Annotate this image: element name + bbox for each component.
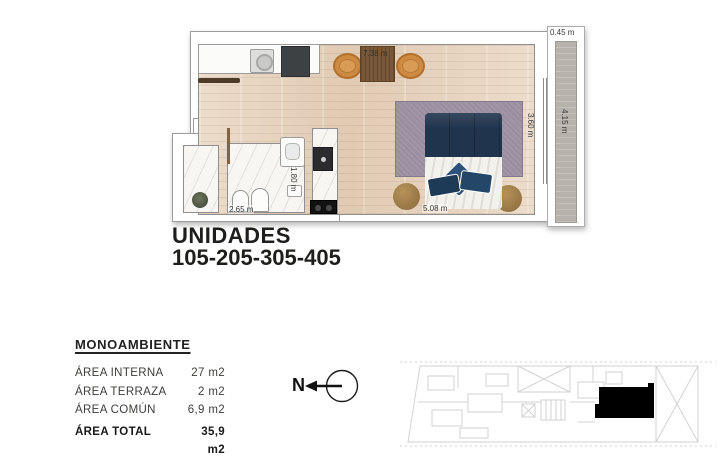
area-row-terraza: ÁREA TERRAZA 2 m2 [75, 383, 225, 402]
brochure-page: 7.38 m 0.45 m 3.60 m 4.15 m 5.08 m 2.65 … [0, 0, 720, 474]
stove [281, 46, 310, 77]
areas-heading: MONOAMBIENTE [75, 337, 225, 352]
oven [313, 147, 333, 171]
cooktop [310, 200, 337, 214]
page-title: UNIDADES [172, 225, 341, 247]
bed-pillow [459, 170, 493, 194]
dim-room-depth: 3.60 m [526, 112, 535, 138]
window [543, 78, 547, 184]
floorplan: 7.38 m 0.45 m 3.60 m 4.15 m 5.08 m 2.65 … [170, 8, 590, 240]
area-label: ÁREA TERRAZA [75, 383, 173, 402]
unit-highlight [595, 383, 654, 418]
dim-room-width: 7.38 m [362, 49, 388, 58]
area-total-label: ÁREA TOTAL [75, 423, 173, 460]
plant [192, 192, 208, 208]
entry-bench [198, 78, 240, 83]
pouf-left [393, 183, 420, 210]
dim-bath-width: 2.65 m [228, 205, 254, 214]
bed [425, 113, 502, 209]
areas-table: MONOAMBIENTE ÁREA INTERNA 27 m2 ÁREA TER… [75, 337, 225, 460]
area-row-comun: ÁREA COMÚN 6,9 m2 [75, 401, 225, 420]
dining-chair-left [333, 53, 362, 79]
dim-bath-depth: 1.80 m [289, 166, 298, 192]
area-label: ÁREA INTERNA [75, 364, 173, 383]
area-row-interna: ÁREA INTERNA 27 m2 [75, 364, 225, 383]
bed-duvet [425, 113, 502, 159]
area-value: 6,9 m2 [181, 401, 225, 420]
bathroom-door [227, 128, 230, 164]
north-label: N [292, 375, 305, 396]
dim-terrace-depth: 0.45 m [549, 28, 575, 37]
area-label: ÁREA COMÚN [75, 401, 173, 420]
dim-bed-wall: 5.08 m [422, 204, 448, 213]
unit-title: UNIDADES 105-205-305-405 [172, 225, 341, 268]
washing-machine [250, 49, 274, 73]
area-value: 27 m2 [181, 364, 225, 383]
dining-chair-right [396, 53, 425, 79]
keyplan [398, 352, 720, 474]
toilet [280, 137, 305, 167]
area-total-value: 35,9 m2 [181, 423, 225, 460]
area-value: 2 m2 [181, 383, 225, 402]
dim-terrace-length: 4.15 m [560, 108, 569, 134]
north-indicator: N [290, 366, 362, 408]
unit-numbers: 105-205-305-405 [172, 247, 341, 268]
area-row-total: ÁREA TOTAL 35,9 m2 [75, 423, 225, 460]
